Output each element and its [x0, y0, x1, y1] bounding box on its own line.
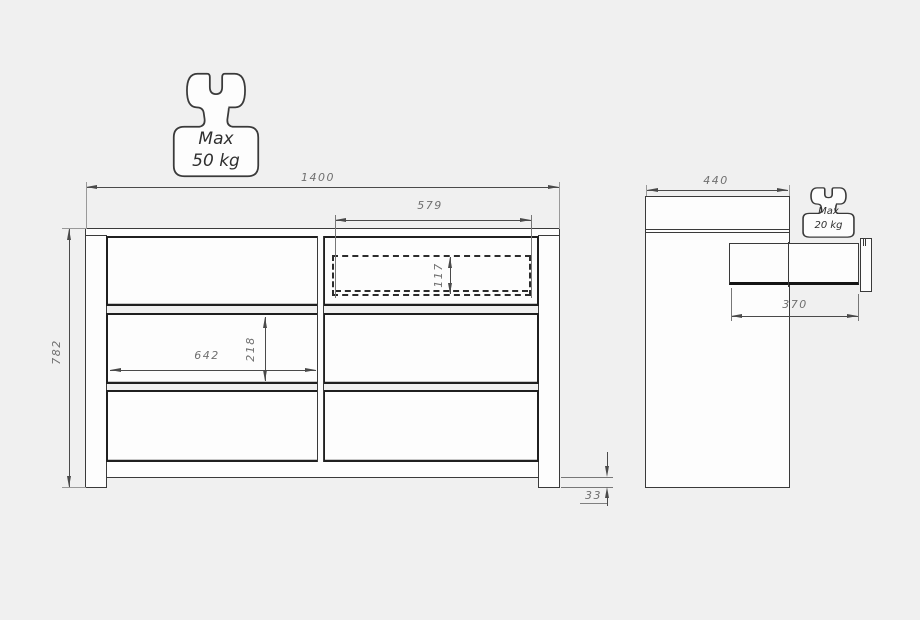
dim-label-overall-height: 782	[50, 332, 64, 372]
dim-label-drawer-front-height: 218	[244, 329, 258, 369]
dim-line-depth	[647, 190, 788, 191]
front-left-side-panel	[85, 235, 107, 488]
drawer-front-top-left	[106, 236, 319, 306]
dim-label-drawer-extension: 370	[765, 298, 825, 312]
ext-line-overall-height-top	[62, 228, 86, 229]
technical-drawing-dresser: 1400 579 117 642 218 782 33 Max 50 kg	[0, 0, 920, 620]
ext-line-depth-right	[789, 185, 790, 196]
arrow-overall-width-right	[548, 185, 559, 189]
side-view-top-panel-lines	[645, 229, 790, 233]
drawer-front-bottom-right	[323, 390, 539, 462]
front-right-side-panel	[538, 235, 560, 488]
dim-line-drawer-extension	[731, 316, 858, 317]
dim-label-internal-drawer-width: 579	[400, 199, 460, 213]
side-view-cabinet-edge-overlay	[788, 242, 789, 287]
ext-line-overall-width-left	[86, 182, 87, 229]
drawer-front-middle-right	[323, 313, 539, 384]
arrow-depth-left	[647, 188, 658, 192]
dim-label-internal-drawer-height: 117	[432, 255, 446, 295]
ext-line-internal-width-left	[335, 215, 336, 298]
drawer-front-bottom-left	[106, 390, 319, 462]
ext-line-overall-width-right	[559, 182, 560, 229]
dim-label-depth: 440	[686, 174, 746, 188]
arrow-internal-height-bottom	[448, 283, 452, 294]
weight-limit-20kg-line2: 20 kg	[804, 219, 853, 233]
arrow-front-height-top	[263, 317, 267, 328]
front-bottom-rail	[106, 461, 539, 478]
side-view-body	[645, 196, 790, 488]
front-center-divider	[317, 236, 324, 462]
arrow-plinth-down	[605, 466, 609, 477]
arrow-internal-width-right	[520, 218, 531, 222]
ext-line-plinth-top	[561, 477, 613, 478]
arrow-internal-width-left	[335, 218, 346, 222]
arrow-front-height-bottom	[263, 370, 267, 381]
dim-line-overall-height	[69, 229, 70, 487]
dim-line-drawer-opening-width	[110, 370, 316, 371]
arrow-opening-width-left	[110, 368, 121, 372]
dim-line-overall-width	[86, 187, 559, 188]
weight-limit-20kg-line1: Max	[804, 205, 853, 219]
ext-line-internal-width-right	[531, 215, 532, 298]
dim-stem-plinth-upper	[607, 452, 608, 466]
ext-line-extension-right	[858, 294, 859, 321]
arrow-opening-width-right	[305, 368, 316, 372]
ext-line-overall-height-bottom	[62, 487, 86, 488]
dim-stem-plinth-lower	[607, 498, 608, 506]
weight-limit-50kg-line1: Max	[174, 128, 258, 150]
side-view-drawer-body	[729, 243, 859, 285]
arrow-overall-height-top	[67, 229, 71, 240]
arrow-depth-right	[777, 188, 788, 192]
weight-limit-50kg-line2: 50 kg	[174, 150, 258, 172]
ext-line-extension-left	[731, 288, 732, 321]
arrow-overall-width-left	[86, 185, 97, 189]
dim-label-overall-width: 1400	[288, 171, 348, 185]
side-view-drawer-front-panel	[860, 238, 872, 292]
arrow-extension-left	[731, 314, 742, 318]
dim-label-plinth-height: 33	[580, 489, 607, 504]
side-view-drawer-front-notch	[863, 239, 866, 246]
dim-label-drawer-opening-width: 642	[177, 349, 237, 363]
arrow-extension-right	[847, 314, 858, 318]
arrow-internal-height-top	[448, 257, 452, 268]
arrow-overall-height-bottom	[67, 476, 71, 487]
ext-line-depth-left	[646, 185, 647, 196]
weight-limit-text-20kg: Max 20 kg	[804, 205, 853, 233]
dim-line-internal-drawer-width	[335, 220, 531, 221]
weight-limit-text-50kg: Max 50 kg	[174, 128, 258, 172]
